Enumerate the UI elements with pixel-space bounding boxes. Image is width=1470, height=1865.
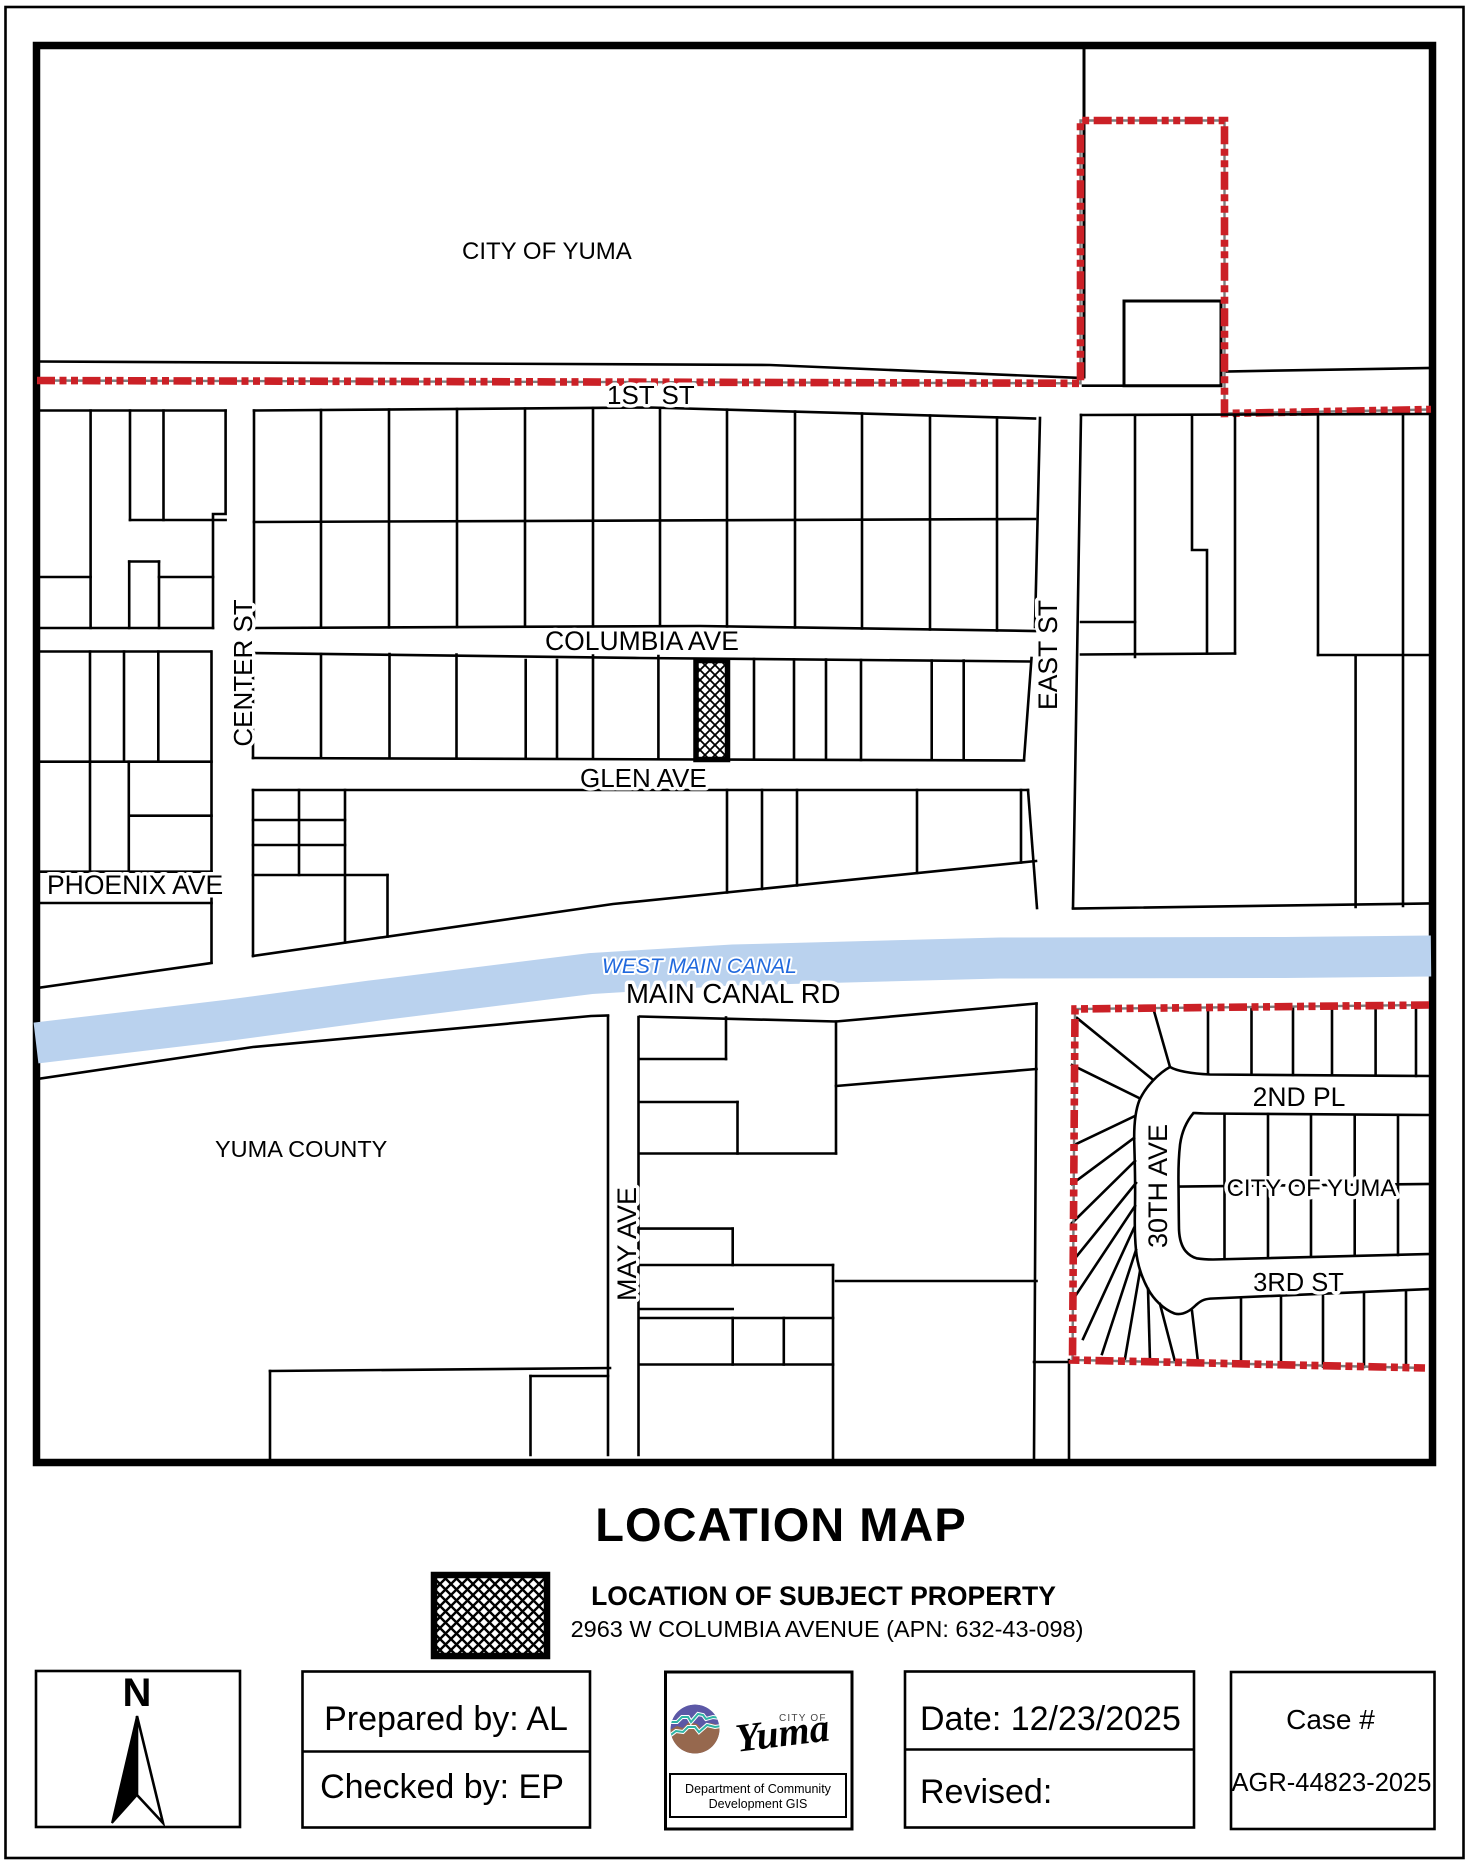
svg-text:AGR-44823-2025: AGR-44823-2025 — [1232, 1769, 1432, 1797]
svg-text:3RD ST: 3RD ST — [1253, 1269, 1344, 1297]
svg-text:CENTER ST: CENTER ST — [228, 599, 258, 746]
svg-text:30TH AVE: 30TH AVE — [1143, 1124, 1173, 1248]
svg-text:LOCATION MAP: LOCATION MAP — [595, 1498, 966, 1551]
svg-text:GLEN AVE: GLEN AVE — [580, 763, 707, 793]
svg-text:WEST MAIN CANAL: WEST MAIN CANAL — [602, 955, 797, 978]
svg-text:N: N — [123, 1671, 152, 1715]
svg-text:LOCATION OF SUBJECT PROPERTY: LOCATION OF SUBJECT PROPERTY — [591, 1581, 1056, 1611]
svg-text:PHOENIX AVE: PHOENIX AVE — [47, 870, 223, 900]
svg-text:2ND PL: 2ND PL — [1253, 1082, 1346, 1112]
svg-text:Date: 12/23/2025: Date: 12/23/2025 — [920, 1700, 1181, 1738]
svg-text:1ST ST: 1ST ST — [607, 380, 695, 410]
svg-text:Development GIS: Development GIS — [709, 1797, 808, 1811]
svg-text:Case #: Case # — [1286, 1704, 1375, 1735]
svg-text:2963 W COLUMBIA AVENUE (APN: 6: 2963 W COLUMBIA AVENUE (APN: 632-43-098) — [571, 1616, 1084, 1642]
svg-text:YUMA COUNTY: YUMA COUNTY — [215, 1136, 388, 1162]
svg-text:Revised:: Revised: — [920, 1773, 1052, 1811]
svg-text:CITY OF YUMA: CITY OF YUMA — [1227, 1175, 1397, 1202]
svg-text:COLUMBIA AVE: COLUMBIA AVE — [545, 626, 739, 656]
svg-text:MAIN CANAL RD: MAIN CANAL RD — [626, 978, 840, 1009]
svg-text:Prepared by: AL: Prepared by: AL — [324, 1700, 568, 1738]
svg-text:EAST ST: EAST ST — [1033, 600, 1063, 710]
svg-text:MAY AVE: MAY AVE — [612, 1187, 642, 1301]
svg-text:Department of Community: Department of Community — [685, 1782, 832, 1796]
svg-text:CITY OF YUMA: CITY OF YUMA — [462, 238, 632, 265]
svg-text:Checked by: EP: Checked by: EP — [320, 1768, 564, 1806]
